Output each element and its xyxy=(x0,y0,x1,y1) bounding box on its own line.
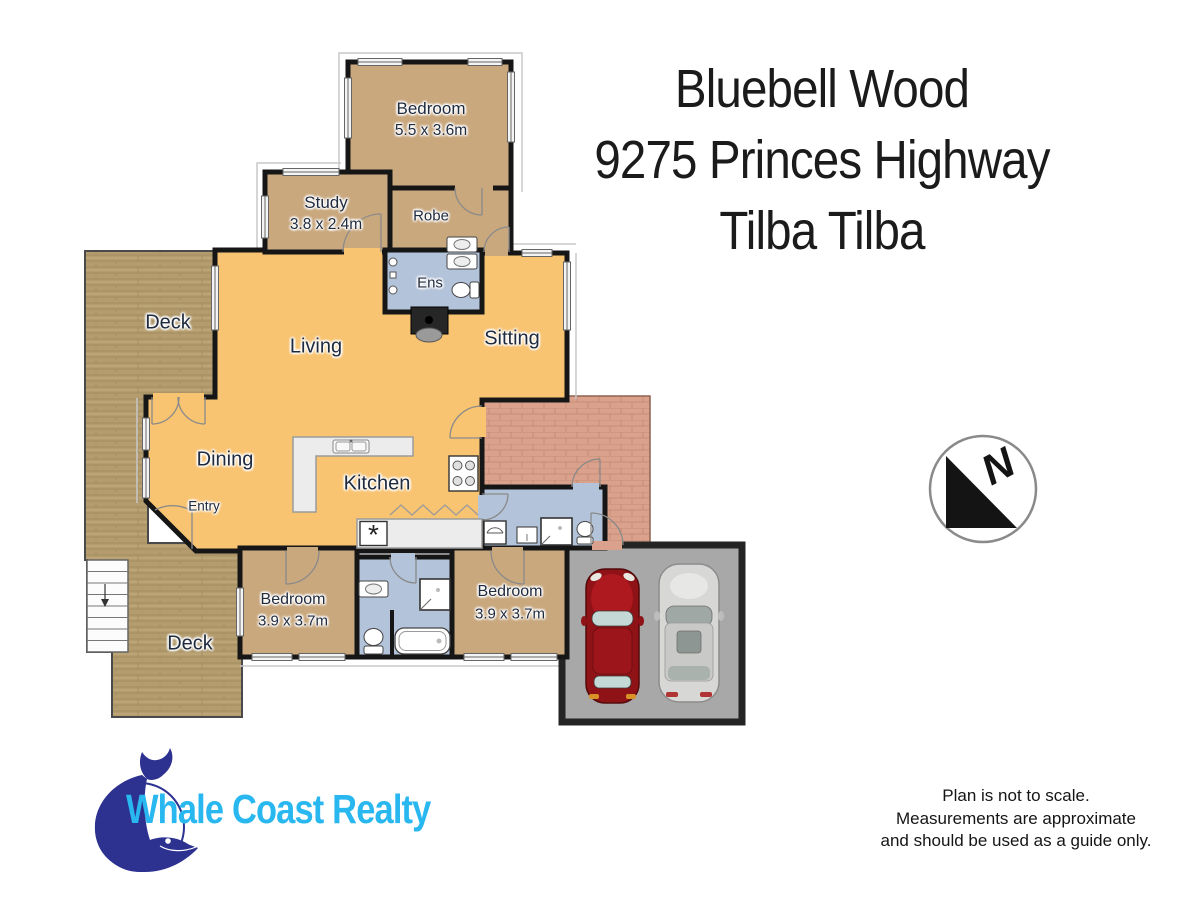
disclaimer-line-3: and should be used as a guide only. xyxy=(858,830,1174,853)
disclaimer-line-2: Measurements are approximate xyxy=(858,808,1174,831)
room-dims-bedroom-top: 5.5 x 3.6m xyxy=(395,122,467,140)
property-title: Bluebell Wood 9275 Princes Highway Tilba… xyxy=(584,54,1059,267)
room-label-robe: Robe xyxy=(413,208,449,225)
room-dims-bedroom-right: 3.9 x 3.7m xyxy=(475,606,545,623)
room-label-sitting: Sitting xyxy=(484,328,540,351)
room-label-dining: Dining xyxy=(197,449,254,472)
room-dims-bedroom-left: 3.9 x 3.7m xyxy=(258,613,328,630)
disclaimer-line-1: Plan is not to scale. xyxy=(858,785,1174,808)
room-label-study: Study xyxy=(304,193,347,213)
room-label-entry: Entry xyxy=(188,499,220,514)
logo-text: Whale Coast Realty xyxy=(126,786,431,833)
property-address: 9275 Princes Highway xyxy=(584,125,1059,196)
property-suburb: Tilba Tilba xyxy=(584,196,1059,267)
disclaimer: Plan is not to scale. Measurements are a… xyxy=(858,785,1174,853)
dishwasher-icon: * xyxy=(368,519,379,550)
room-label-bedroom-left: Bedroom xyxy=(261,591,326,609)
room-label-bedroom-top: Bedroom xyxy=(397,99,466,119)
room-label-ens: Ens xyxy=(417,275,443,292)
room-label-deck-bottom: Deck xyxy=(167,633,213,656)
car-red xyxy=(581,569,644,703)
room-label-deck-top: Deck xyxy=(145,312,191,335)
room-label-kitchen: Kitchen xyxy=(344,473,411,496)
car-silver xyxy=(654,564,724,702)
room-label-bedroom-right: Bedroom xyxy=(478,583,543,601)
compass-icon: N xyxy=(922,430,1042,550)
stairs xyxy=(87,560,128,652)
room-dims-study: 3.8 x 2.4m xyxy=(290,216,362,234)
bedroom-right-room xyxy=(452,548,567,657)
property-name: Bluebell Wood xyxy=(584,54,1059,125)
floor-plan-page: * xyxy=(0,0,1200,900)
room-label-living: Living xyxy=(290,336,342,359)
